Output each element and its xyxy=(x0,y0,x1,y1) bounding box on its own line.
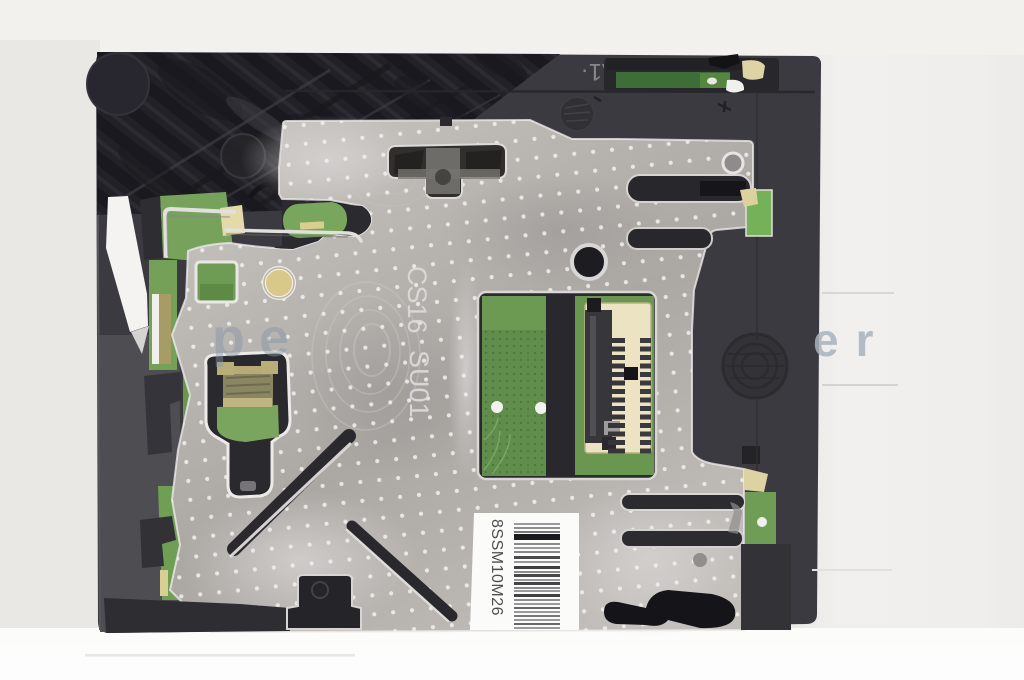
svg-text:CS16: CS16 xyxy=(402,266,432,334)
svg-text:SU01: SU01 xyxy=(404,350,434,418)
svg-text:8SSM10M26: 8SSM10M26 xyxy=(488,519,505,616)
svg-text:pe: pe xyxy=(212,308,303,368)
svg-text:er: er xyxy=(813,314,890,366)
